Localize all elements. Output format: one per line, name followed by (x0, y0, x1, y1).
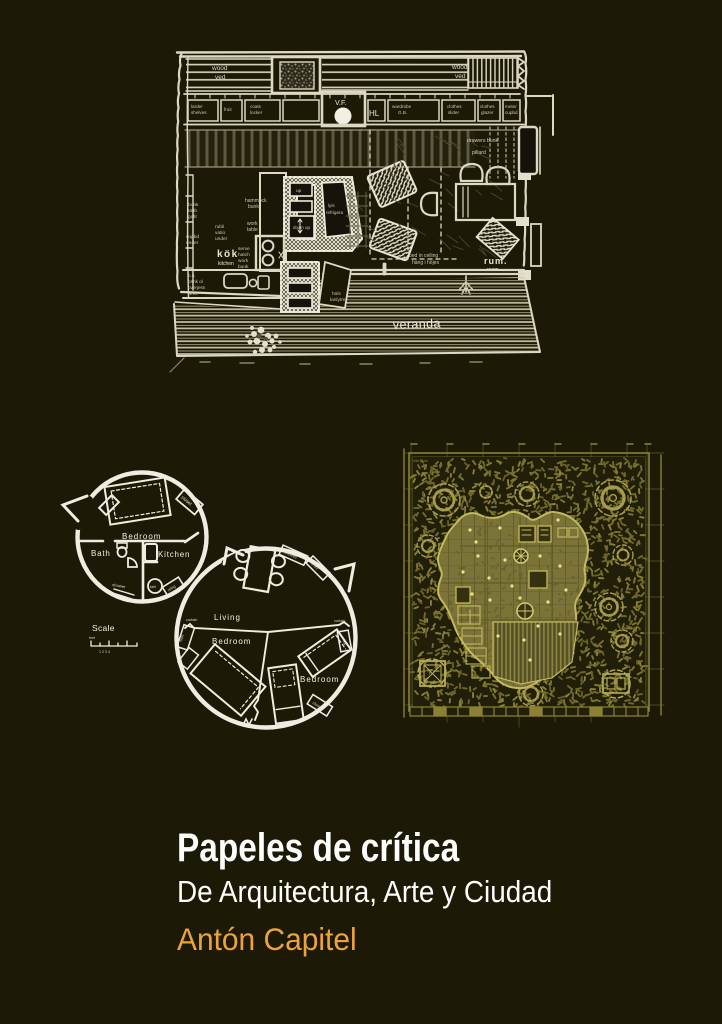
svg-text:HL: HL (369, 109, 380, 118)
svg-text:lanlytre: lanlytre (330, 297, 346, 303)
svg-text:up: up (305, 225, 311, 230)
svg-text:locker: locker (250, 110, 263, 115)
svg-text:clothes: clothes (480, 104, 495, 109)
svg-text:down: down (293, 225, 304, 230)
svg-text:bed in ceiling: bed in ceiling (409, 253, 438, 259)
svg-text:ved: ved (215, 74, 226, 81)
svg-text:curtain: curtain (334, 619, 345, 623)
svg-text:wood: wood (451, 64, 468, 71)
svg-text:under: under (215, 236, 228, 242)
svg-text:feet: feet (89, 636, 95, 640)
svg-text:Scale: Scale (92, 623, 115, 633)
svg-text:tabl: tabl (150, 585, 156, 589)
svg-text:rum.: rum. (484, 256, 508, 266)
svg-text:drawers bunk: drawers bunk (467, 138, 499, 144)
svg-text:veranda: veranda (393, 316, 441, 332)
svg-text:rubli: rubli (215, 224, 224, 230)
svg-text:serve: serve (238, 246, 250, 252)
svg-text:b.h.: b.h. (188, 273, 196, 278)
svg-text:overjess: overjess (188, 285, 206, 290)
svg-text:slider: slider (448, 110, 459, 115)
svg-text:table: table (247, 227, 258, 233)
svg-text:larder: larder (191, 104, 203, 109)
svg-text:cupbd: cupbd (505, 110, 518, 115)
svg-text:shelves: shelves (191, 110, 207, 115)
svg-text:Bath: Bath (91, 549, 111, 558)
svg-text:pillard: pillard (472, 150, 486, 156)
svg-text:wood: wood (211, 65, 228, 72)
svg-text:V.F.: V.F. (335, 100, 346, 107)
svg-text:Living: Living (214, 613, 241, 622)
svg-text:1 2 3 4: 1 2 3 4 (99, 650, 110, 654)
svg-text:kök: kök (217, 249, 239, 260)
svg-text:up: up (296, 189, 302, 194)
svg-text:site plan: site plan (413, 458, 428, 463)
svg-text:meter: meter (505, 104, 517, 109)
svg-text:Bedroom: Bedroom (300, 675, 339, 684)
svg-text:wardrobe: wardrobe (392, 104, 412, 109)
svg-text:glazer: glazer (481, 110, 494, 115)
svg-text:work: work (238, 258, 249, 264)
svg-text:bänk ol: bänk ol (188, 279, 203, 284)
svg-text:lyis: lyis (328, 203, 335, 208)
svg-text:vatio: vatio (215, 230, 225, 236)
svg-text:curtain: curtain (186, 618, 197, 622)
svg-text:G.B.: G.B. (398, 110, 407, 115)
svg-text:clothes: clothes (447, 104, 462, 109)
svg-text:Kitchen: Kitchen (158, 550, 190, 559)
svg-text:hatch: hatch (238, 252, 250, 258)
svg-text:Bedroom: Bedroom (212, 637, 251, 646)
svg-text:höis: höis (332, 291, 341, 297)
svg-text:coats: coats (250, 104, 262, 109)
svg-text:häng i höjes: häng i höjes (412, 260, 439, 266)
svg-text:ved: ved (455, 73, 466, 80)
svg-text:Bedroom: Bedroom (122, 532, 161, 541)
svg-text:refrigera: refrigera (326, 210, 344, 215)
svg-text:bunk: bunk (248, 204, 259, 210)
svg-text:kitchen: kitchen (218, 261, 234, 267)
svg-text:fruit: fruit (224, 107, 232, 112)
